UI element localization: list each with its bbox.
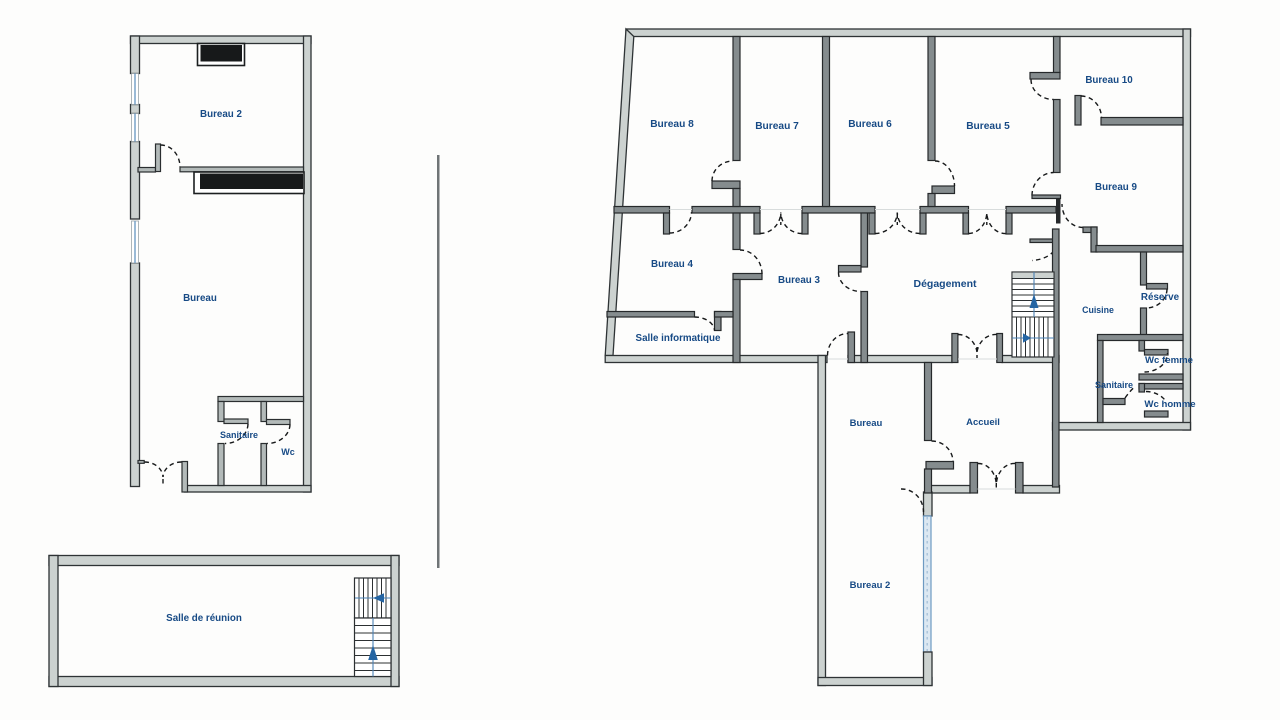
svg-text:Bureau 2: Bureau 2 bbox=[200, 109, 242, 120]
svg-text:Salle informatique: Salle informatique bbox=[636, 333, 721, 344]
svg-text:Bureau: Bureau bbox=[183, 293, 217, 304]
svg-text:Bureau 9: Bureau 9 bbox=[1095, 182, 1137, 193]
svg-text:Bureau 4: Bureau 4 bbox=[651, 259, 693, 270]
svg-text:Bureau 5: Bureau 5 bbox=[966, 121, 1010, 132]
svg-text:Bureau 7: Bureau 7 bbox=[755, 121, 799, 132]
svg-text:Bureau: Bureau bbox=[850, 418, 883, 429]
svg-text:Dégagement: Dégagement bbox=[913, 278, 977, 290]
svg-text:Bureau 2: Bureau 2 bbox=[850, 580, 891, 591]
svg-text:Bureau 10: Bureau 10 bbox=[1085, 75, 1133, 86]
svg-text:Salle de réunion: Salle de réunion bbox=[166, 613, 242, 624]
svg-text:Sanitaire: Sanitaire bbox=[220, 430, 258, 440]
svg-text:Bureau 8: Bureau 8 bbox=[650, 119, 694, 130]
svg-text:Bureau 6: Bureau 6 bbox=[848, 119, 892, 130]
svg-text:Wc homme: Wc homme bbox=[1144, 399, 1195, 410]
svg-text:Wc femme: Wc femme bbox=[1145, 355, 1193, 366]
svg-text:Cuisine: Cuisine bbox=[1082, 305, 1114, 315]
svg-text:Wc: Wc bbox=[281, 447, 295, 457]
svg-text:Réserve: Réserve bbox=[1141, 292, 1180, 303]
svg-text:Sanitaire: Sanitaire bbox=[1095, 380, 1133, 390]
svg-text:Bureau 3: Bureau 3 bbox=[778, 275, 820, 286]
svg-text:Accueil: Accueil bbox=[966, 417, 1000, 428]
